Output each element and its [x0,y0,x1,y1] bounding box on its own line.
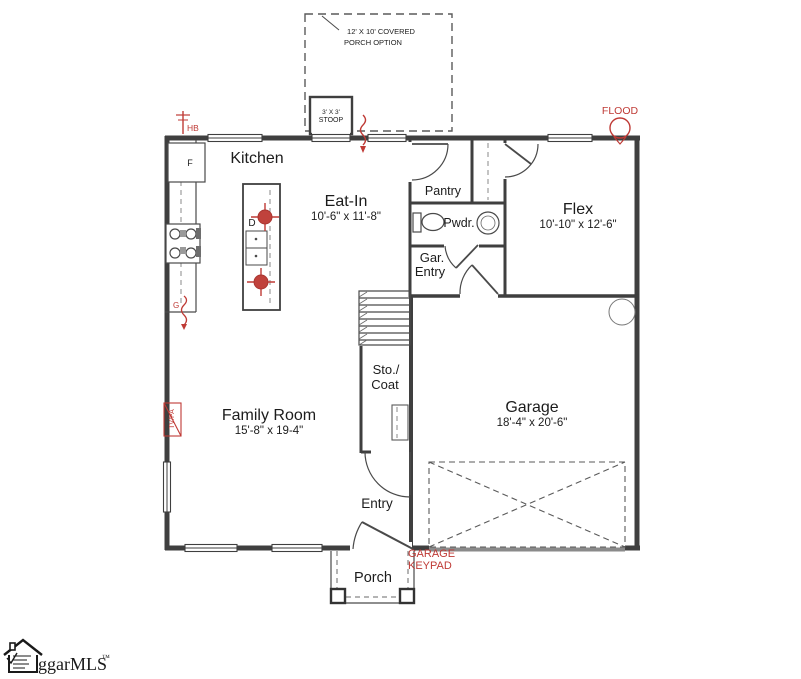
windows [164,135,593,552]
garage-door-area [429,462,625,550]
storage-coat-label-line2: Coat [371,377,399,392]
flex-label: Flex [563,201,593,218]
gas-stub-icon: G [173,296,187,330]
stoop-label-line2: STOOP [319,117,344,124]
sink-icon [246,231,267,265]
porch-label: Porch [354,570,392,586]
wall-openings [161,132,625,553]
stoop-label-line1: 3' X 3' [322,109,340,116]
pantry-label: Pantry [425,184,462,198]
covered-porch-label-line2: PORCH OPTION [344,38,402,47]
toilet-icon [413,213,444,232]
floor-plan-drawing: 12' X 10' COVERED PORCH OPTION 3' X 3' S… [0,0,801,679]
eat-in-dims: 10'-6" x 11'-8" [311,211,381,223]
logo-tm: ™ [102,653,110,662]
entry-label: Entry [361,496,393,511]
garage-keypad-line1: GARAGE [408,548,455,560]
refrigerator-label: F [187,158,193,168]
window-family-bottom-1 [185,545,237,552]
exterior-walls [165,136,640,550]
switch-leg-icon [360,115,366,153]
window-eat-in [368,135,406,142]
garage-dims: 18'-4" x 20'-6" [497,417,568,429]
gas-label: G [173,301,179,310]
window-family-left [164,462,171,512]
logo-text: ggarMLS [38,654,107,674]
garage-keypad-label: GARAGE KEYPAD [408,548,455,572]
stoop: 3' X 3' STOOP [310,97,352,134]
powder-sink-icon [477,212,499,234]
refrigerator-icon: F [168,143,205,182]
house-logo-icon [4,640,42,672]
porch-column [331,589,345,603]
kitchen-label: Kitchen [230,150,283,167]
window-kitchen [208,135,262,142]
interior-walls [361,138,639,548]
garage-keypad-line2: KEYPAD [408,560,452,572]
flex-dims: 10'-10" x 12'-6" [539,219,616,231]
water-heater-icon [609,299,635,325]
family-room-dims: 15'-8" x 19-4" [235,425,304,437]
hose-bib-icon: HB [176,111,199,134]
garage-entry-door [460,265,498,294]
door-stoop [312,135,350,142]
flood-label: FLOOD [602,105,639,117]
window-flex [548,135,592,142]
family-room-label: Family Room [222,407,316,424]
hose-bib-label: HB [187,123,199,133]
covered-porch-label-line1: 12' X 10' COVERED [347,27,415,36]
range-icon [166,224,201,263]
dishwasher-label: D [248,218,255,229]
garage-entry-label-line2: Entry [415,264,446,279]
powder-label: Pwdr. [443,216,474,230]
porch-column [400,589,414,603]
storage-coat-label-line1: Sto./ [373,362,400,377]
garage-entry-label-line1: Gar. [420,250,445,265]
kitchen-island: D [243,184,280,310]
window-family-bottom-2 [272,545,322,552]
closet-door [365,452,410,497]
tv-phone-label: TV/PA [169,409,176,429]
flex-door [505,144,538,177]
ggar-mls-logo: ggarMLS ™ [4,640,110,674]
garage-label: Garage [505,399,558,416]
eat-in-label: Eat-In [325,193,368,210]
staircase [359,291,410,345]
pantry-door [412,144,448,180]
storage-coat-closet [365,405,410,497]
floor-plan-page: 12' X 10' COVERED PORCH OPTION 3' X 3' S… [0,0,801,679]
